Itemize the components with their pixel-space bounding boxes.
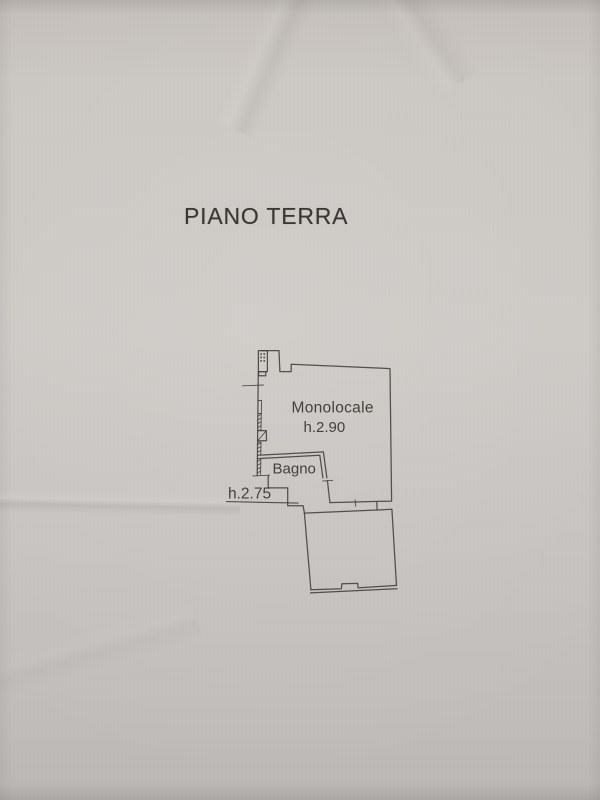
room-label-bagno: Bagno	[273, 461, 316, 478]
floor-plan-drawing: Monolocale h.2.90 Bagno h.2.75	[0, 0, 600, 800]
room-label-monolocale: Monolocale	[292, 400, 374, 417]
window-symbol	[258, 351, 267, 376]
paper-sheet-photo: PIANO TERRA	[0, 0, 600, 800]
door-tick-bagno	[323, 480, 333, 481]
room-height-monolocale: h.2.90	[304, 419, 346, 436]
dimension-tick-left-wall	[243, 385, 264, 386]
room-lower-outline	[304, 509, 397, 593]
door-tick-bottom-wall	[355, 500, 356, 507]
wall-pilaster	[258, 431, 267, 441]
height-annotation-h275: h.2.75	[228, 486, 271, 503]
